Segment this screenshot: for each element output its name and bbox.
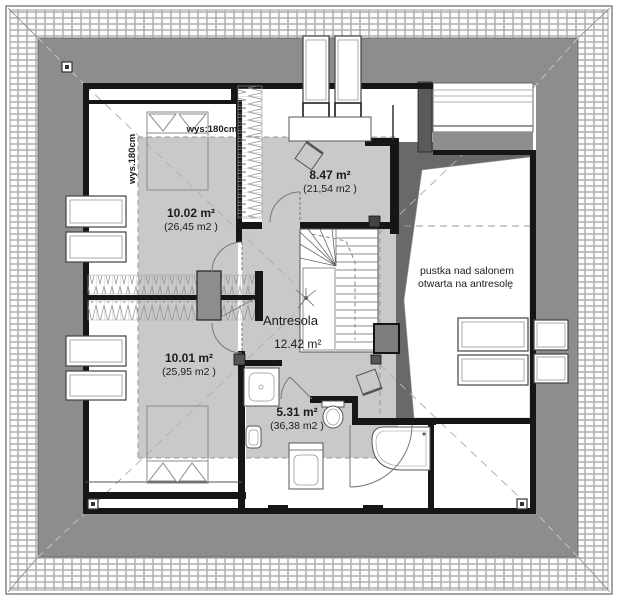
- sink-cabinet-icon: [289, 443, 323, 489]
- room-label-study-total: (21,54 m2 ): [303, 183, 357, 195]
- room-label-study-area: 8.47 m²: [309, 168, 350, 182]
- room-label-mezzanine-name: Antresola: [263, 313, 318, 328]
- toilet-icon: [322, 401, 344, 428]
- void-label-line2: otwarta na antresolę: [418, 278, 513, 290]
- floor-plan: 10.02 m² (26,45 m2 ) 8.47 m² (21,54 m2 )…: [0, 0, 618, 600]
- room-label-bedroom-bottom-total: (25,95 m2 ): [162, 366, 216, 378]
- void-label-line1: pustka nad salonem: [420, 265, 514, 277]
- room-label-bathroom-total: (36,38 m2 ): [270, 420, 324, 432]
- pillar: [418, 82, 432, 152]
- bathtub-icon: [372, 427, 430, 470]
- room-label-bedroom-top-total: (26,45 m2 ): [164, 221, 218, 233]
- room-label-bedroom-bottom-area: 10.01 m²: [165, 351, 213, 365]
- height-marker-vertical: wys.180cm: [127, 134, 138, 184]
- shower-icon: [244, 368, 279, 406]
- skylight-band: [433, 83, 533, 150]
- height-marker-horizontal: wys:180cm: [187, 124, 238, 135]
- wall-block: [369, 216, 380, 227]
- floor-plan-drawing: [0, 0, 618, 600]
- room-label-bathroom-area: 5.31 m²: [276, 405, 317, 419]
- washbasin-icon: [246, 426, 261, 448]
- door-hinge-block: [234, 354, 245, 365]
- vent: [363, 505, 383, 511]
- room-label-mezzanine-area: 12.42 m²: [274, 337, 321, 351]
- chimney: [374, 324, 399, 353]
- desk-icon: [289, 117, 371, 141]
- room-label-bedroom-top-area: 10.02 m²: [167, 206, 215, 220]
- vent: [268, 505, 288, 511]
